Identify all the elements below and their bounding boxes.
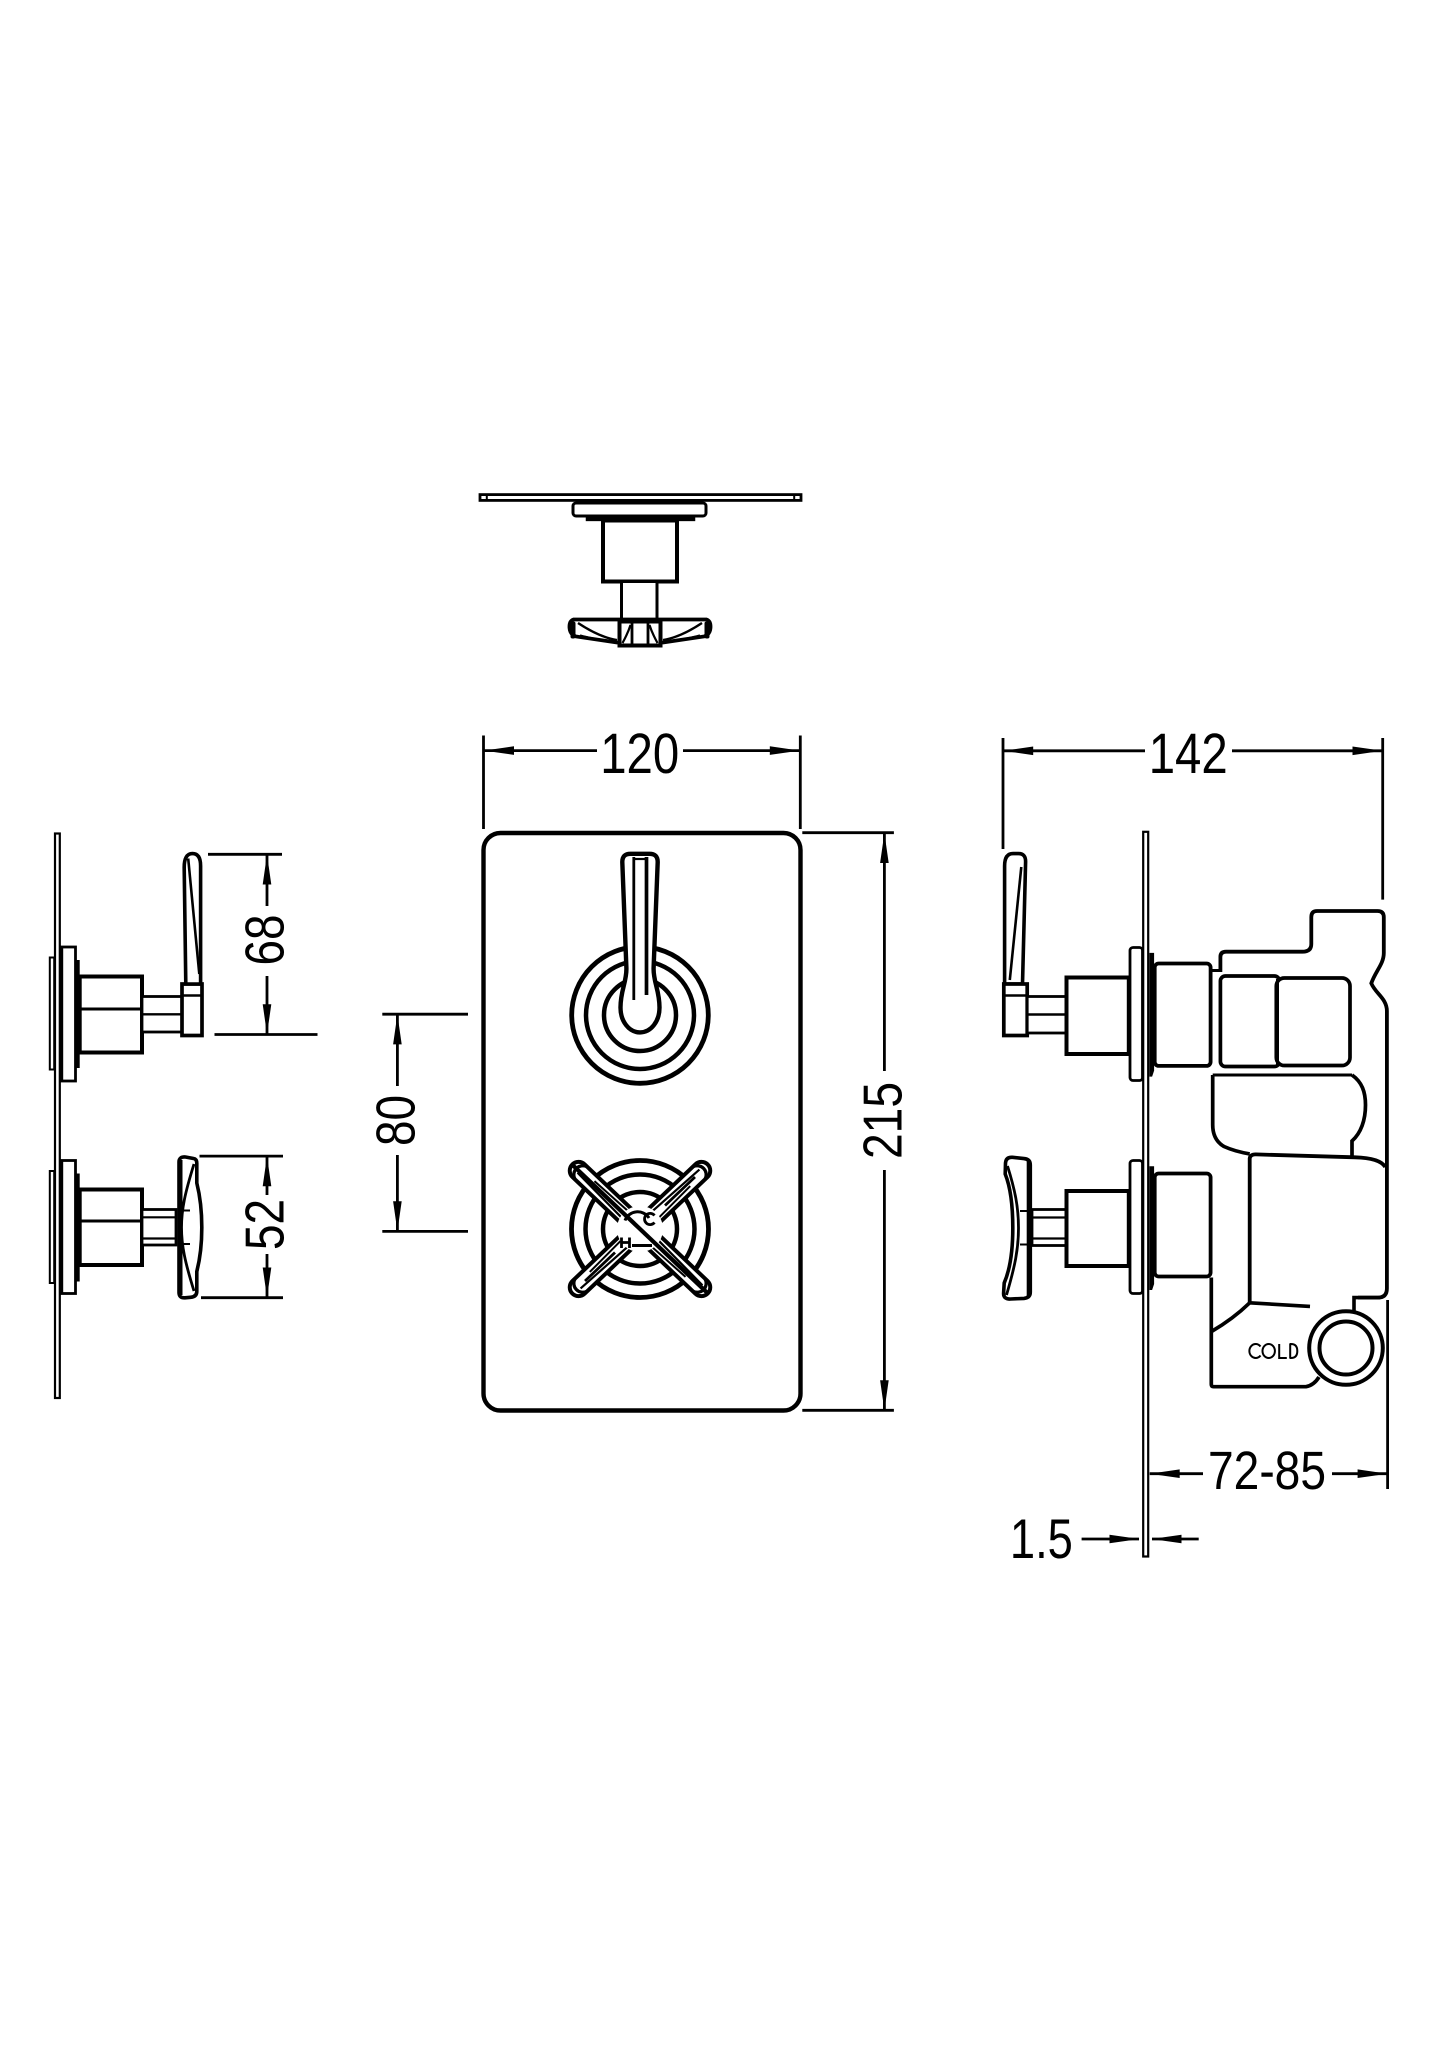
svg-text:72-85: 72-85 bbox=[1208, 1441, 1326, 1501]
svg-text:52: 52 bbox=[234, 1199, 296, 1250]
svg-text:1.5: 1.5 bbox=[1010, 1507, 1073, 1570]
svg-text:120: 120 bbox=[600, 722, 679, 786]
svg-text:215: 215 bbox=[852, 1082, 914, 1159]
svg-text:80: 80 bbox=[365, 1095, 427, 1146]
svg-text:142: 142 bbox=[1149, 722, 1228, 786]
svg-text:68: 68 bbox=[234, 915, 296, 966]
